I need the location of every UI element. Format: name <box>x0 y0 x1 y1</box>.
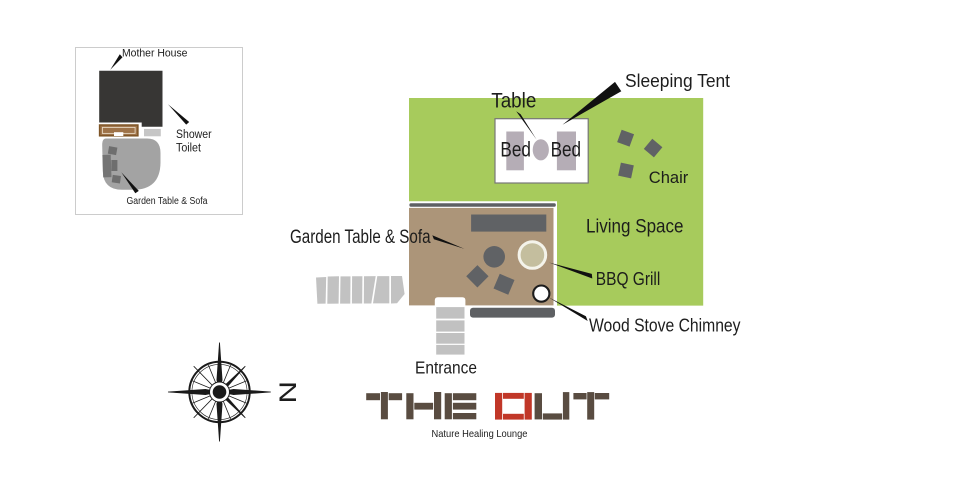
svg-text:Garden Table & Sofa: Garden Table & Sofa <box>127 196 208 207</box>
svg-text:Nature Healing Lounge: Nature Healing Lounge <box>432 428 528 440</box>
svg-text:Entrance: Entrance <box>415 358 477 378</box>
svg-text:Garden Table & Sofa: Garden Table & Sofa <box>290 227 431 248</box>
svg-text:Mother House: Mother House <box>122 48 188 60</box>
svg-text:Toilet: Toilet <box>176 140 201 154</box>
svg-text:Bed: Bed <box>551 138 582 161</box>
svg-text:Wood Stove Chimney: Wood Stove Chimney <box>589 314 741 335</box>
svg-text:Shower: Shower <box>176 127 212 141</box>
svg-text:Table: Table <box>491 89 536 113</box>
svg-text:N: N <box>274 381 301 404</box>
svg-text:Bed: Bed <box>500 138 531 161</box>
svg-text:Living Space: Living Space <box>586 216 684 238</box>
svg-text:BBQ Grill: BBQ Grill <box>596 268 661 289</box>
svg-text:Sleeping Tent: Sleeping Tent <box>625 71 730 91</box>
svg-text:Chair: Chair <box>649 168 689 187</box>
